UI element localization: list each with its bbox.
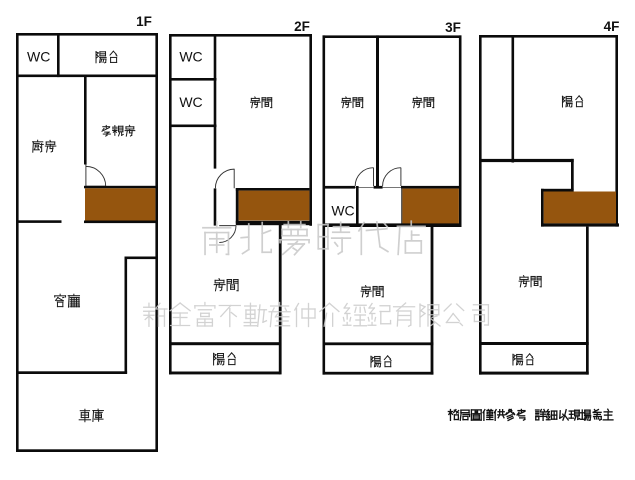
svg-text:WC: WC [27,49,50,65]
svg-text:3F: 3F [445,20,461,35]
svg-text:2F: 2F [294,19,310,34]
svg-text:1F: 1F [136,14,152,29]
svg-text:WC: WC [179,49,202,65]
svg-text:WC: WC [179,94,202,110]
svg-text:4F: 4F [604,19,620,34]
svg-text:WC: WC [331,203,354,219]
